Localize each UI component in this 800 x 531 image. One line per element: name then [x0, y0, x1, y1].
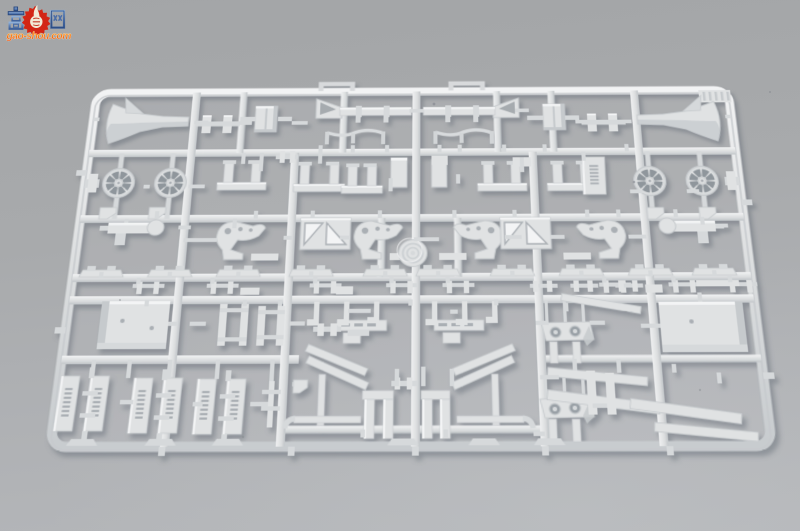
- svg-text:gao-shou.com: gao-shou.com: [6, 31, 72, 42]
